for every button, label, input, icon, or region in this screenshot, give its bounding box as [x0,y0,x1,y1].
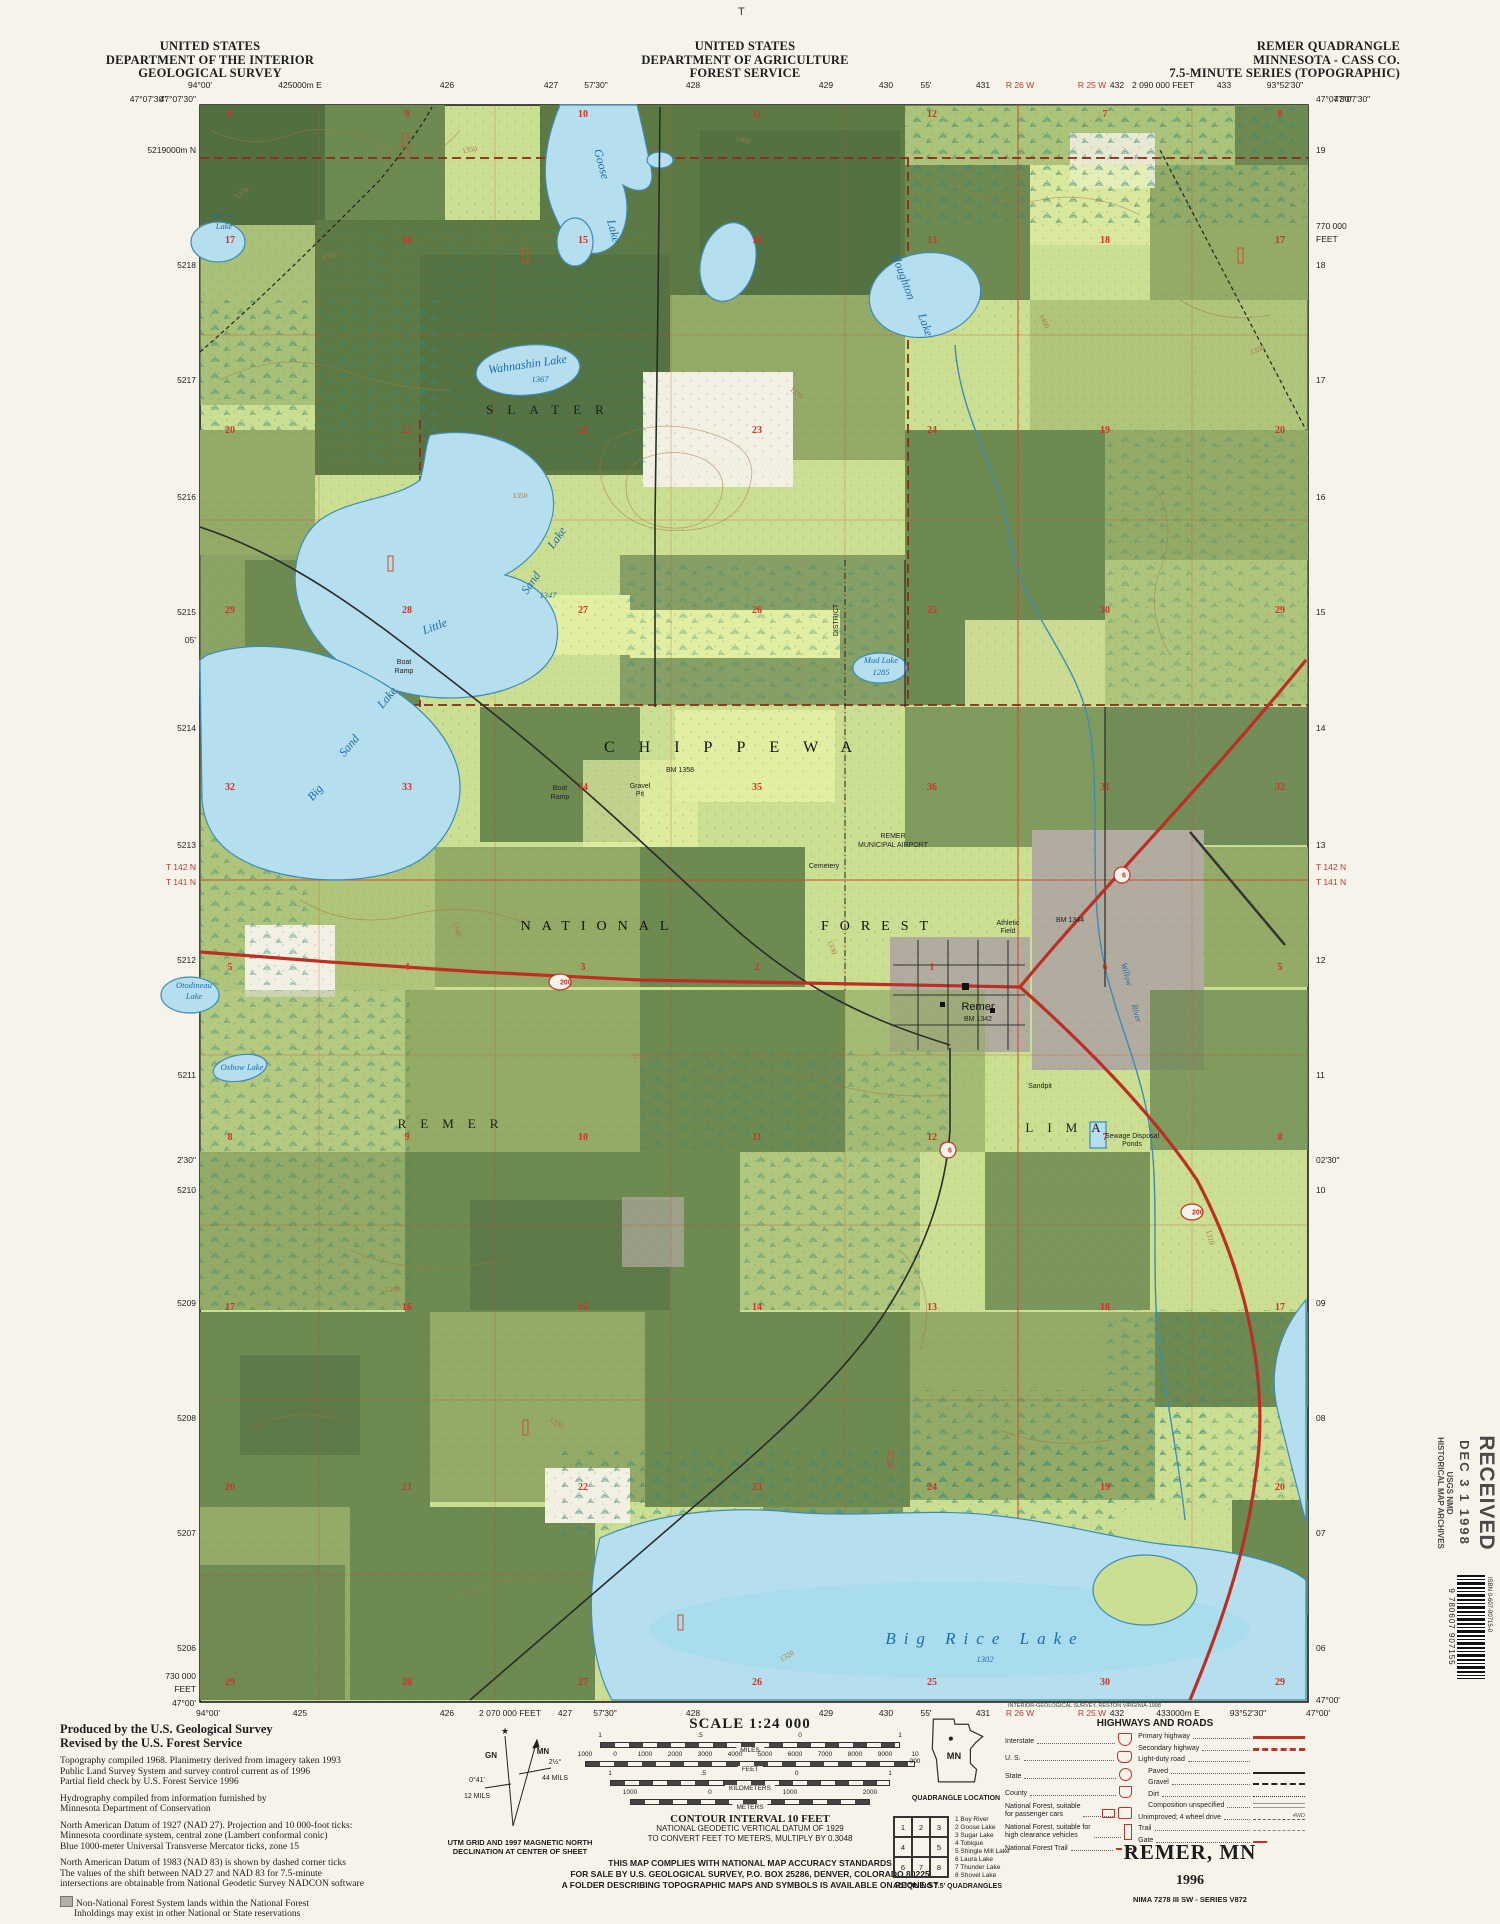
section-number: 24 [927,425,937,436]
adjoining-cell: 1 [894,1817,912,1837]
legend-title: HIGHWAYS AND ROADS [1005,1718,1305,1729]
section-number: 9 [405,1132,410,1143]
collar-label: 06 [1316,1643,1325,1653]
collar-label: 433 [1217,80,1231,90]
map-label: DISTRICT [833,603,840,636]
section-number: 18 [1100,1302,1110,1313]
county-shield-icon [1119,1786,1132,1798]
section-number: 21 [402,1482,412,1493]
section-number: 3 [581,962,586,973]
roadline-unspec-sample [1253,1803,1305,1808]
map-label: BM 1342 [964,1016,992,1023]
highways-legend: HIGHWAYS AND ROADS InterstateU. S.StateC… [1005,1718,1305,1858]
legend-row: Unimproved; 4 wheel drive4WD [1138,1814,1305,1822]
section-number: 24 [927,1482,937,1493]
map-label: Oxbow Lake [221,1062,264,1072]
roadline-primary-sample [1253,1736,1305,1739]
collar-label: T 141 N [116,877,196,887]
production-note-line: Minnesota Department of Conservation [60,1804,460,1815]
map-label: Ponds [1122,1141,1142,1148]
map-label: REMER [880,833,905,840]
highway-shield-number: 200 [560,980,572,987]
map-label: Ramp [551,794,570,801]
section-number: 12 [927,1132,937,1143]
collar-label: 5212 [116,955,196,965]
map-label: Mud Lake [863,655,898,665]
interstate-shield-icon [1118,1733,1132,1746]
section-number: 8 [228,109,233,120]
collar-label: 5206 [116,1643,196,1653]
production-note-line: Produced by the U.S. Geological Survey [60,1722,460,1736]
section-number: 30 [1100,1677,1110,1688]
collar-label: 19 [1316,145,1325,155]
map-label: 1350 [385,1285,400,1294]
production-note-line: Minnesota coordinate system, central zon… [60,1831,460,1842]
collar-label: 426 [440,80,454,90]
adjoining-cell: 8 [930,1857,948,1877]
map-label: Pit [636,791,644,798]
legend-row: Paved [1138,1768,1305,1776]
adjoining-cell [912,1837,930,1857]
collar-label: 5210 [116,1185,196,1195]
legend-row: Secondary highway [1138,1745,1305,1753]
section-number: 15 [578,235,588,246]
quadrangle-location: MN QUADRANGLE LOCATION [896,1716,1016,1802]
section-number: 34 [578,782,588,793]
map-label: 1302 [977,1654,995,1664]
collar-label: R 25 W [1078,1708,1106,1718]
legend-row: Interstate [1005,1733,1132,1746]
collar-label: 430 [879,80,893,90]
roadline-unimproved-sample: 4WD [1253,1819,1305,1820]
roadline-trail-sample [1253,1830,1305,1831]
legend-row: Trail [1138,1825,1305,1833]
collar-label: 770 000 [1316,221,1347,231]
collar-label: 425000m E [278,80,321,90]
collar-label: 10 [1316,1185,1325,1195]
roadline-secondary-sample [1253,1748,1305,1751]
section-number: 6 [1103,962,1108,973]
state-shield-icon [1119,1768,1132,1781]
legend-row: National Forest, suitable for high clear… [1005,1824,1132,1840]
scale-bar-feet: 1000010002000300040005000600070008000900… [585,1753,915,1771]
collar-label: 08 [1316,1413,1325,1423]
section-number: 20 [1275,425,1285,436]
collar-label: R 26 W [1006,80,1034,90]
collar-label: 47°00' [1306,1708,1330,1718]
section-number: 22 [578,1482,588,1493]
production-notes: Produced by the U.S. Geological SurveyRe… [60,1722,460,1924]
collar-label: 5215 [116,607,196,617]
section-number: 23 [752,1482,762,1493]
section-number: 16 [402,235,412,246]
sheet-name: REMER, MN [1060,1840,1320,1865]
collar-label: 426 [440,1708,454,1718]
production-note-line: Non-National Forest System lands within … [60,1896,460,1910]
section-number: 17 [1275,235,1285,246]
section-number: 27 [578,1677,588,1688]
legend-row: National Forest, suitable for passenger … [1005,1803,1132,1819]
collar-label: 425 [293,1708,307,1718]
collar-label: 18 [1316,260,1325,270]
collar-label: 5208 [116,1413,196,1423]
collar-label: 16 [1316,492,1325,502]
production-note-line: intersections are obtainable from Nation… [60,1879,460,1890]
section-number: 10 [578,1132,588,1143]
legend-row: Composition unspecified [1138,1802,1305,1810]
collar-label: 93°52'30" [1267,80,1303,90]
production-note-line: Partial field check by U.S. Forest Servi… [60,1777,460,1788]
collar-label: 09 [1316,1298,1325,1308]
collar-label: 47°00' [116,1698,196,1708]
section-number: 19 [1100,425,1110,436]
section-number: 9 [405,109,410,120]
sheet-year: 1996 [1060,1873,1320,1889]
legend-row: Light-duty road [1138,1756,1305,1764]
production-note-line: Blue 1000-meter Universal Transverse Mer… [60,1842,460,1853]
roadline-gravel-sample [1253,1783,1305,1785]
highway-shield-number: 6 [1122,873,1126,880]
production-note-line: Revised by the U.S. Forest Service [60,1736,460,1750]
adjoining-cell: 2 [912,1817,930,1837]
section-number: 2 [755,962,760,973]
map-label: Beboo [213,210,235,220]
legend-row: Primary highway [1138,1733,1305,1741]
section-number: 23 [752,425,762,436]
legend-row: County [1005,1786,1132,1798]
production-note-line: The values of the shift between NAD 27 a… [60,1869,460,1880]
sheet-title-block: REMER, MN 1996 NIMA 7278 III SW - SERIES… [1060,1840,1320,1904]
collar-label: 12 [1316,955,1325,965]
section-number: 16 [402,1302,412,1313]
section-number: 14 [752,235,762,246]
map-label: Big Rice Lake [885,1629,1084,1648]
received-stamp: RECEIVED DEC 3 1 1998 USGS NMD HISTORICA… [1388,1408,1498,1578]
collar-label: 11 [1316,1070,1325,1080]
production-note-line: North American Datum of 1983 (NAD 83) is… [60,1858,460,1869]
collar-label: 47°07'30" [116,94,196,104]
svg-text:0°41': 0°41' [469,1776,485,1784]
collar-label: 93°52'30" [1230,1708,1266,1718]
section-number: 35 [752,782,762,793]
section-number: 28 [402,1677,412,1688]
adjoining-cell: 5 [930,1837,948,1857]
svg-text:12 MILS: 12 MILS [464,1793,490,1800]
collar-label: 5216 [116,492,196,502]
svg-text:GN: GN [485,1751,497,1760]
production-note-line: Topography compiled 1968. Planimetry der… [60,1756,460,1767]
production-note-line: Public Land Survey System and survey con… [60,1767,460,1778]
section-number: 29 [1275,1677,1285,1688]
section-number: 22 [578,425,588,436]
production-note-line: North American Datum of 1927 (NAD 27). P… [60,1821,460,1832]
svg-text:★: ★ [501,1726,509,1736]
section-number: 7 [1103,109,1108,120]
topographic-map: 20062006 8910111278171615141318172021222… [0,0,1500,1924]
map-label: 1347 [540,590,558,600]
collar-label: 428 [686,80,700,90]
production-note-line: Hydrography compiled from information fu… [60,1794,460,1805]
adjoining-cell: 3 [930,1817,948,1837]
section-number: 14 [752,1302,762,1313]
survey-credit: INTERIOR-GEOLOGICAL SURVEY, RESTON VIRGI… [1008,1703,1161,1709]
collar-label: FEET [116,1684,196,1694]
section-number: 20 [225,425,235,436]
section-number: 18 [1100,235,1110,246]
scale-bar-miles: 1.501MILES [600,1734,900,1752]
isbn-barcode: ISBN 0-607-90715-0 9 780607 907155 [1436,1569,1492,1685]
section-number: 26 [752,1677,762,1688]
section-number: 30 [1100,605,1110,616]
map-label: Sewage Disposal [1105,1133,1160,1140]
map-label: NATIONAL [521,919,680,934]
collar-label: 94°00' [188,80,212,90]
collar-label: 5209 [116,1298,196,1308]
collar-label: 5213 [116,840,196,850]
section-number: 5 [228,962,233,973]
map-label: 1350 [513,491,528,500]
collar-label: FEET [1316,234,1338,244]
map-label: MUNICIPAL AIRPORT [858,842,929,849]
map-label: LIMA [1025,1120,1114,1135]
inholding-swatch [60,1896,73,1907]
collar-label: 55' [920,80,931,90]
section-number: 29 [225,1677,235,1688]
collar-label: T 141 N [1316,877,1346,887]
section-number: 8 [1278,1132,1283,1143]
map-label: 1285 [873,667,890,677]
map-label: REMER [398,1116,513,1131]
section-number: 4 [405,962,410,973]
collar-label: 431 [976,80,990,90]
collar-label: T 142 N [116,862,196,872]
section-number: 25 [927,605,937,616]
section-number: 20 [225,1482,235,1493]
highway-shield-number: 200 [1192,1210,1204,1217]
section-number: 20 [1275,1482,1285,1493]
map-sheet: UNITED STATESDEPARTMENT OF THE INTERIORG… [0,0,1500,1924]
roadline-paved-sample [1253,1772,1305,1774]
production-note-line: Inholdings may exist in other National o… [60,1909,460,1920]
collar-label: 5211 [116,1070,196,1080]
scale-bar-meters: 1000010002000METERS [630,1791,870,1809]
collar-label: R 25 W [1078,80,1106,90]
section-number: 31 [1100,782,1110,793]
map-label: Remer [961,1001,994,1013]
section-number: 28 [402,605,412,616]
section-number: 15 [578,1302,588,1313]
collar-label: 47°07'30" [1316,94,1352,104]
collar-label: 13 [1316,840,1325,850]
section-number: 17 [225,1302,235,1313]
collar-label: 429 [819,80,833,90]
section-number: 33 [402,782,412,793]
map-label: 1367 [532,374,550,384]
section-number: 19 [1100,1482,1110,1493]
adjoining-cell: 6 [894,1857,912,1877]
section-number: 17 [225,235,235,246]
section-number: 27 [578,605,588,616]
barcode-bars [1457,1575,1485,1679]
collar-label: 17 [1316,375,1325,385]
scale-bar-kilometers: 1.501KILOMETERS [610,1772,890,1790]
map-label: BM 1358 [666,767,694,774]
collar-label: 07 [1316,1528,1325,1538]
nf-car-shield-icon [1118,1807,1132,1819]
section-number: 13 [927,235,937,246]
collar-label: 2 090 000 FEET [1132,80,1194,90]
sheet-series: NIMA 7278 III SW - SERIES V872 [1060,1895,1320,1904]
collar-label: 14 [1316,723,1325,733]
section-number: 36 [927,782,937,793]
collar-label: 730 000 [116,1671,196,1681]
section-number: 26 [752,605,762,616]
collar-label: T 142 N [1316,862,1346,872]
nf-high-shield-icon [1124,1824,1132,1840]
section-number: 32 [1275,782,1285,793]
map-label: BM 1344 [1056,917,1084,924]
collar-label: 5218 [116,260,196,270]
adjoining-cell: 7 [912,1857,930,1877]
section-number: 1 [930,962,935,973]
collar-label: 5214 [116,723,196,733]
collar-label: 427 [544,80,558,90]
section-number: 29 [1275,605,1285,616]
collar-label: 15 [1316,607,1325,617]
section-number: 29 [225,605,235,616]
collar-label: 5217 [116,375,196,385]
section-number: 8 [228,1132,233,1143]
section-number: 5 [1278,962,1283,973]
map-label: Otodineau [176,980,212,990]
collar-label: 2'30" [116,1155,196,1165]
legend-row: Dirt [1138,1791,1305,1799]
section-number: 11 [752,109,761,120]
section-number: 10 [578,109,588,120]
map-label: Boat [397,659,411,666]
section-number: 17 [1275,1302,1285,1313]
section-number: 11 [752,1132,761,1143]
map-label: Lake [185,991,203,1001]
map-label: Cemetery [809,863,840,870]
collar-label: 433000m E [1156,1708,1199,1718]
isbn-text: ISBN 0-607-90715-0 [1486,1569,1492,1685]
map-label: Gravel [630,783,651,790]
section-number: 8 [1278,109,1283,120]
map-label: Sandpit [1028,1083,1052,1090]
map-label: Boat [553,785,567,792]
collar-label: 94°00' [196,1708,220,1718]
collar-label: 5207 [116,1528,196,1538]
section-number: 13 [927,1302,937,1313]
barcode-number: 9 780607 907155 [1447,1569,1456,1685]
collar-label: 02'30" [1316,1155,1340,1165]
section-number: 25 [927,1677,937,1688]
collar-label: 5219000m N [116,145,196,155]
collar-label: 57'30" [584,80,608,90]
section-number: 12 [927,109,937,120]
map-label: Lake [215,221,233,231]
map-label: SLATER [486,402,618,417]
legend-row: Gravel [1138,1779,1305,1787]
map-label: CHIPPEWA [604,739,876,756]
roadline-dirt-sample [1253,1796,1305,1797]
section-number: 32 [225,782,235,793]
legend-row: U. S. [1005,1751,1132,1763]
collar-label: 432 [1110,1708,1124,1718]
map-label: Athletic [997,920,1020,927]
map-label: FOREST [821,919,939,934]
collar-label: 432 [1110,80,1124,90]
svg-text:MN: MN [947,1751,962,1761]
adjoining-cell: 4 [894,1837,912,1857]
map-label: Field [1000,928,1015,935]
legend-row: State [1005,1768,1132,1781]
collar-label: 47°00' [1316,1695,1340,1705]
highway-shield-number: 6 [948,1148,952,1155]
us-shield-icon [1117,1751,1132,1763]
section-number: 21 [402,425,412,436]
map-label: Ramp [395,668,414,675]
collar-label: 05' [116,635,196,645]
